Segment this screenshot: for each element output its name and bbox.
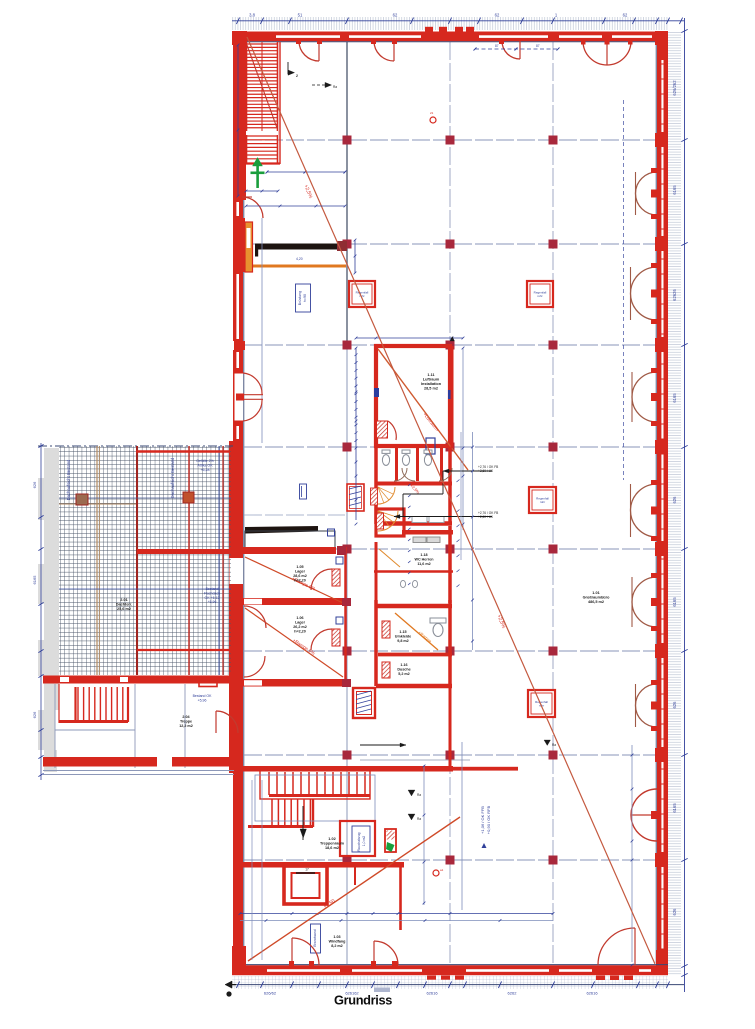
svg-text:1.01: 1.01 xyxy=(592,591,599,595)
svg-text:Lager: Lager xyxy=(295,570,306,574)
svg-text:+5,96: +5,96 xyxy=(208,600,217,604)
svg-text:1.11: 1.11 xyxy=(427,373,434,377)
svg-text:Dachaufsicht Bestand: Dachaufsicht Bestand xyxy=(66,459,71,500)
svg-text:11,6 m2: 11,6 m2 xyxy=(417,562,430,566)
svg-text:28,5 m2: 28,5 m2 xyxy=(424,387,438,391)
svg-text:WC Herren: WC Herren xyxy=(414,557,434,561)
svg-text:2.01: 2.01 xyxy=(120,598,127,602)
svg-text:Ra: Ra xyxy=(333,85,337,89)
svg-text:25,6 m2: 25,6 m2 xyxy=(117,607,131,611)
svg-text:Umkleide: Umkleide xyxy=(395,634,411,638)
svg-text:Flachdach: Flachdach xyxy=(204,591,220,595)
svg-text:h=2,20: h=2,20 xyxy=(294,630,306,634)
svg-text:28,6 m2: 28,6 m2 xyxy=(293,574,307,578)
svg-text:9,8 m2: 9,8 m2 xyxy=(397,639,408,643)
svg-text:+2,60 / UK: +2,60 / UK xyxy=(478,515,494,519)
svg-text:+6,28: +6,28 xyxy=(200,468,209,472)
svg-text:6165: 6165 xyxy=(32,575,37,585)
svg-text:Luftraum: Luftraum xyxy=(423,378,440,382)
svg-text:626: 626 xyxy=(32,481,37,488)
svg-text:1.18: 1.18 xyxy=(420,553,427,557)
svg-text:h=90: h=90 xyxy=(303,294,307,302)
svg-text:Rauchabzug: Rauchabzug xyxy=(357,832,361,851)
svg-text:a1: a1 xyxy=(440,868,444,872)
svg-text:Treppenraum: Treppenraum xyxy=(320,842,345,846)
svg-text:1.15: 1.15 xyxy=(399,630,406,634)
svg-text:6165: 6165 xyxy=(672,803,677,813)
svg-text:3,8: 3,8 xyxy=(249,13,255,18)
svg-text:87: 87 xyxy=(495,44,499,48)
svg-text:Dusche: Dusche xyxy=(397,667,410,671)
svg-text:1.16: 1.16 xyxy=(400,663,407,667)
svg-text:626: 626 xyxy=(672,701,677,709)
svg-text:18,6 m2: 18,6 m2 xyxy=(325,846,339,850)
svg-text:Windfang: Windfang xyxy=(329,940,346,944)
svg-text:12,2 m2: 12,2 m2 xyxy=(179,724,193,728)
svg-text:26,2 m2: 26,2 m2 xyxy=(293,625,307,629)
svg-text:62: 62 xyxy=(495,13,500,18)
svg-text:rohr: rohr xyxy=(537,294,542,298)
svg-text:Ra: Ra xyxy=(417,817,421,821)
svg-text:626: 626 xyxy=(32,711,37,718)
svg-text:Dachaufsicht Bestand: Dachaufsicht Bestand xyxy=(170,457,175,498)
svg-text:5,2 m2: 5,2 m2 xyxy=(398,672,409,676)
svg-text:6165: 6165 xyxy=(672,185,677,195)
svg-text:6165: 6165 xyxy=(672,597,677,607)
svg-text:Treppe: Treppe xyxy=(180,719,192,723)
svg-text:+0,90 / OK RFB: +0,90 / OK RFB xyxy=(486,806,491,835)
svg-text:+2,60 / UK: +2,60 / UK xyxy=(478,469,494,473)
svg-text:62626: 62626 xyxy=(672,289,677,301)
svg-text:2: 2 xyxy=(296,74,298,78)
svg-text:6165: 6165 xyxy=(672,393,677,403)
svg-text:626: 626 xyxy=(672,908,677,916)
svg-text:51: 51 xyxy=(298,13,303,18)
svg-text:8,2 m2: 8,2 m2 xyxy=(331,944,342,948)
svg-text:1.03: 1.03 xyxy=(333,935,340,939)
svg-text:626: 626 xyxy=(672,496,677,504)
svg-text:Ra: Ra xyxy=(417,793,421,797)
svg-text:1.06: 1.06 xyxy=(296,616,303,620)
svg-text:626/62: 626/62 xyxy=(264,991,277,996)
svg-text:rohr: rohr xyxy=(540,500,545,504)
svg-text:Attika OK: Attika OK xyxy=(197,463,213,467)
svg-text:626/262: 626/262 xyxy=(672,80,677,96)
svg-text:h=2,20: h=2,20 xyxy=(294,579,306,583)
svg-text:Grundriss: Grundriss xyxy=(334,993,392,1008)
svg-text:62616: 62616 xyxy=(586,991,598,996)
svg-text:Brandwand: Brandwand xyxy=(313,929,317,946)
svg-text:4,20: 4,20 xyxy=(296,257,303,261)
svg-text:486,5 m2: 486,5 m2 xyxy=(588,600,604,604)
svg-text:2.04: 2.04 xyxy=(182,715,190,719)
svg-text:+5,96: +5,96 xyxy=(198,698,207,702)
svg-text:Brüstung: Brüstung xyxy=(298,291,302,305)
svg-text:Dachterr.: Dachterr. xyxy=(116,603,132,607)
svg-text:1.02: 1.02 xyxy=(328,837,335,841)
svg-text:Gefälle 2%: Gefälle 2% xyxy=(196,459,214,463)
svg-text:Installation: Installation xyxy=(421,382,442,386)
svg-text:1.05: 1.05 xyxy=(296,565,303,569)
svg-text:OK +6,12: OK +6,12 xyxy=(205,596,220,600)
svg-text:+1,06 / OK FFB: +1,06 / OK FFB xyxy=(480,806,485,834)
svg-text:Ra: Ra xyxy=(552,743,556,747)
svg-text:62: 62 xyxy=(393,13,398,18)
svg-text:Lager: Lager xyxy=(295,621,306,625)
svg-text:Bestand OK: Bestand OK xyxy=(193,694,213,698)
svg-text:Bestand: Bestand xyxy=(206,587,219,591)
svg-text:87: 87 xyxy=(536,44,540,48)
svg-text:62616: 62616 xyxy=(426,991,438,996)
svg-text:62: 62 xyxy=(623,13,628,18)
svg-text:Großraumbüro: Großraumbüro xyxy=(583,596,610,600)
svg-text:17: 17 xyxy=(305,868,309,872)
svg-text:6262: 6262 xyxy=(508,991,518,996)
svg-text:1,0 m2: 1,0 m2 xyxy=(362,836,366,846)
svg-text:21: 21 xyxy=(430,111,434,115)
